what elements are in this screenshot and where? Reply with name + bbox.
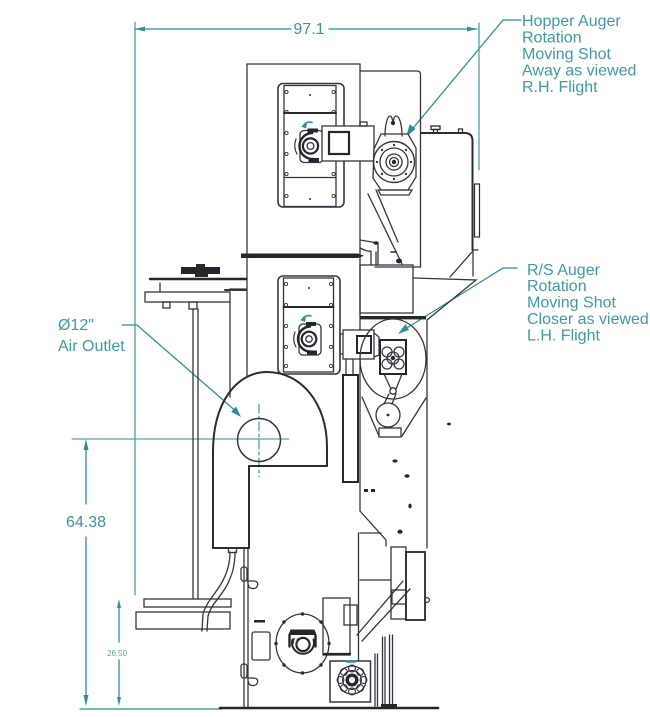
svg-text:97.1: 97.1 bbox=[293, 21, 324, 38]
svg-text:Ø12": Ø12" bbox=[58, 317, 94, 334]
svg-text:Moving Shot: Moving Shot bbox=[522, 46, 611, 63]
svg-text:Away as viewed: Away as viewed bbox=[522, 63, 636, 80]
svg-text:R/S Auger: R/S Auger bbox=[527, 262, 601, 279]
svg-text:26.50: 26.50 bbox=[107, 649, 128, 658]
svg-text:R.H. Flight: R.H. Flight bbox=[522, 79, 598, 96]
svg-text:Moving Shot: Moving Shot bbox=[527, 295, 616, 312]
svg-text:Air Outlet: Air Outlet bbox=[58, 338, 125, 355]
svg-text:L.H. Flight: L.H. Flight bbox=[527, 328, 600, 345]
svg-text:Rotation: Rotation bbox=[522, 30, 582, 47]
svg-text:Hopper Auger: Hopper Auger bbox=[522, 13, 621, 30]
svg-text:Rotation: Rotation bbox=[527, 278, 587, 295]
svg-text:64.38: 64.38 bbox=[66, 514, 106, 531]
svg-text:Closer as viewed: Closer as viewed bbox=[527, 311, 649, 328]
